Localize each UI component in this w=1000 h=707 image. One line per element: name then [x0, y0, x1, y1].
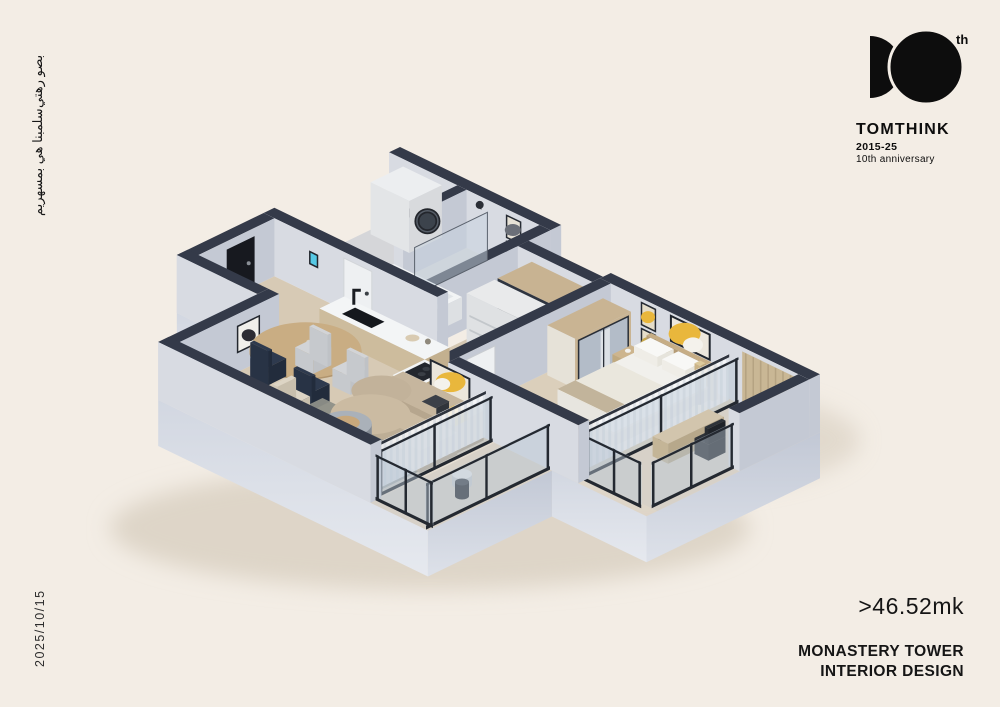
area-label: >46.52mk	[798, 593, 964, 620]
anniversary-10-icon: th	[856, 26, 974, 114]
brand-years: 2015-25	[856, 141, 974, 153]
date-label: 2025/10/15	[33, 589, 47, 667]
project-title-line2: INTERIOR DESIGN	[798, 662, 964, 681]
project-title-line1: MONASTERY TOWER	[798, 642, 964, 661]
project-caption: >46.52mk MONASTERY TOWER INTERIOR DESIGN	[798, 593, 964, 681]
brand-name: TOMTHINK	[856, 121, 974, 139]
side-caption-arabic-2: سلمبنا هي بمسهريم	[30, 108, 46, 216]
brand-anniversary: 10th anniversary	[856, 154, 974, 165]
side-caption-arabic-1: بصو رهتي	[30, 55, 46, 108]
poster-page: بصو رهتي سلمبنا هي بمسهريم 2025/10/15 th…	[0, 0, 1000, 707]
logo-th-superscript: th	[956, 32, 968, 47]
brand-logo: th TOMTHINK 2015-25 10th anniversary	[856, 26, 974, 165]
